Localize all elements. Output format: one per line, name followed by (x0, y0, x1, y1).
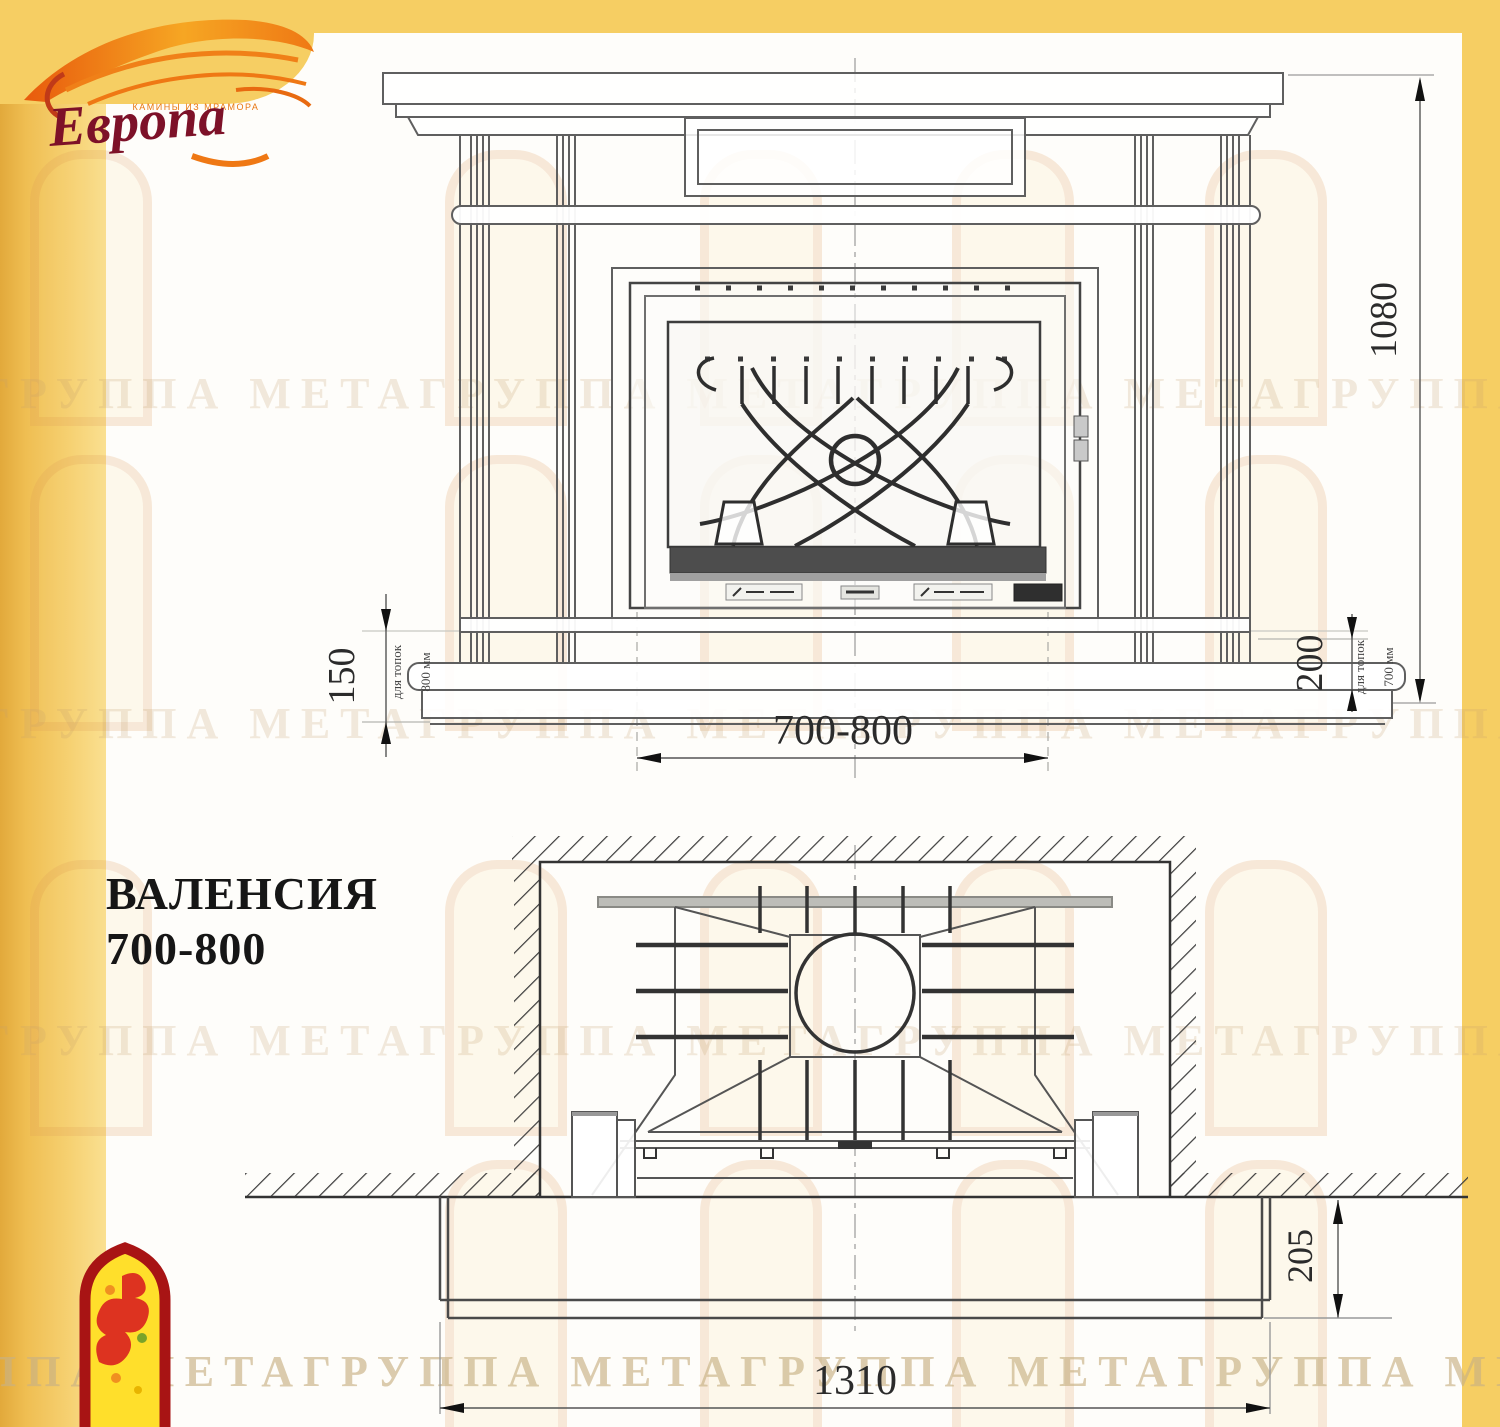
arch-figure-icon (72, 1238, 178, 1427)
brand-logo: КАМИНЫ ИЗ МРАМОРА Европа (6, 4, 326, 189)
dim-right-offset-label: 200 (1289, 635, 1331, 692)
firebox (630, 283, 1088, 608)
model-title: ВАЛЕНСИЯ 700-800 (106, 866, 378, 976)
dim-left-offset-label: 150 (321, 648, 363, 705)
model-title-line1: ВАЛЕНСИЯ (106, 866, 378, 921)
dim-right-note-2: 700 мм (1381, 647, 1396, 686)
dim-right-note-1: для топок (1352, 639, 1367, 694)
flame-swoosh-icon: КАМИНЫ ИЗ МРАМОРА Европа (6, 4, 326, 184)
dim-depth-label: 205 (1280, 1229, 1320, 1283)
plan-dimensions (440, 1200, 1392, 1414)
dim-width-label: 700-800 (773, 708, 913, 754)
dim-left-note-1: для топок (389, 644, 404, 699)
plan-view: 205 1310 (245, 836, 1468, 1414)
front-view: 1080 150 для топок 800 мм 200 для топок … (321, 58, 1436, 778)
arch-figure-logo (72, 1238, 178, 1427)
dim-height-label: 1080 (1363, 282, 1405, 358)
dim-plan-width-label: 1310 (813, 1358, 897, 1404)
dim-left-note-2: 800 мм (418, 652, 433, 691)
fireplace-technical-drawing: 1080 150 для топок 800 мм 200 для топок … (0, 0, 1500, 1427)
page: ГРУППА МЕТАГРУППА МЕТАГРУППА МЕТАГРУППА … (0, 0, 1500, 1427)
flue-circle (796, 934, 914, 1052)
model-title-line2: 700-800 (106, 921, 378, 976)
brand-name: Европа (46, 85, 228, 159)
